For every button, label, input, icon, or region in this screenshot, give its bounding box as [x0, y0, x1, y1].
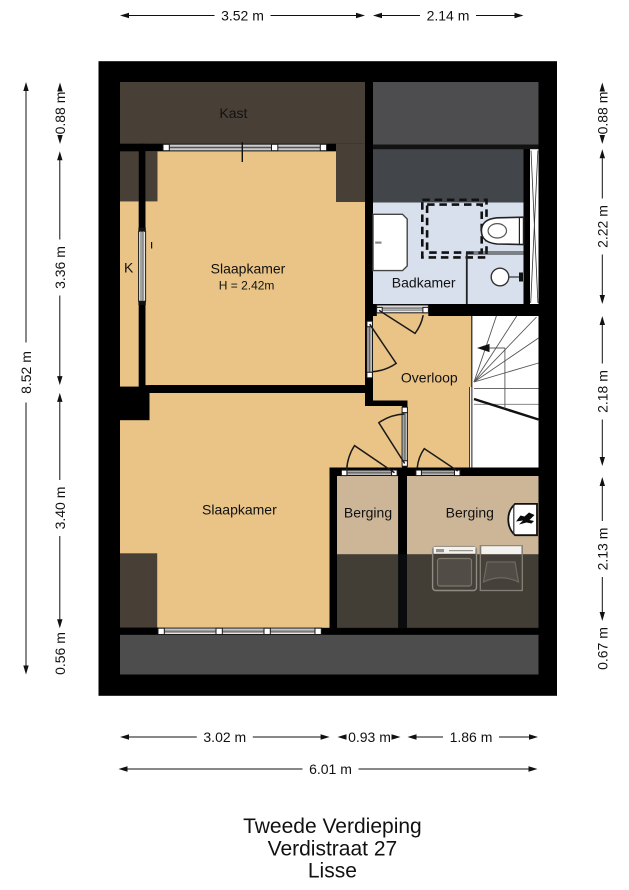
svg-text:2.13 m: 2.13 m [594, 528, 610, 571]
svg-text:2.18 m: 2.18 m [594, 370, 610, 413]
svg-text:H = 2.42m: H = 2.42m [219, 279, 275, 293]
svg-text:3.36 m: 3.36 m [52, 246, 68, 289]
svg-text:Berging: Berging [446, 505, 494, 521]
svg-text:K: K [124, 260, 134, 276]
svg-text:Slaapkamer: Slaapkamer [202, 502, 277, 518]
svg-text:0.88 m: 0.88 m [52, 92, 68, 135]
svg-text:Lisse: Lisse [308, 860, 357, 883]
svg-text:3.52 m: 3.52 m [221, 8, 264, 24]
svg-text:2.22 m: 2.22 m [594, 205, 610, 248]
svg-text:Badkamer: Badkamer [392, 275, 456, 291]
svg-text:Overloop: Overloop [401, 369, 458, 385]
svg-text:2.14 m: 2.14 m [427, 8, 470, 24]
svg-text:6.01 m: 6.01 m [309, 761, 352, 777]
svg-text:1.86 m: 1.86 m [450, 729, 493, 745]
svg-text:0.67 m: 0.67 m [594, 627, 610, 670]
svg-text:Verdistraat 27: Verdistraat 27 [268, 837, 398, 860]
svg-text:0.56 m: 0.56 m [52, 632, 68, 675]
svg-text:Slaapkamer: Slaapkamer [211, 260, 286, 276]
svg-text:0.88 m: 0.88 m [594, 92, 610, 135]
svg-text:8.52 m: 8.52 m [18, 351, 34, 394]
svg-text:Kast: Kast [219, 105, 247, 121]
svg-text:Tweede Verdieping: Tweede Verdieping [243, 815, 422, 838]
svg-text:0.93 m: 0.93 m [348, 729, 391, 745]
svg-text:Berging: Berging [344, 505, 392, 521]
svg-text:3.40 m: 3.40 m [52, 487, 68, 530]
svg-text:3.02 m: 3.02 m [203, 729, 246, 745]
